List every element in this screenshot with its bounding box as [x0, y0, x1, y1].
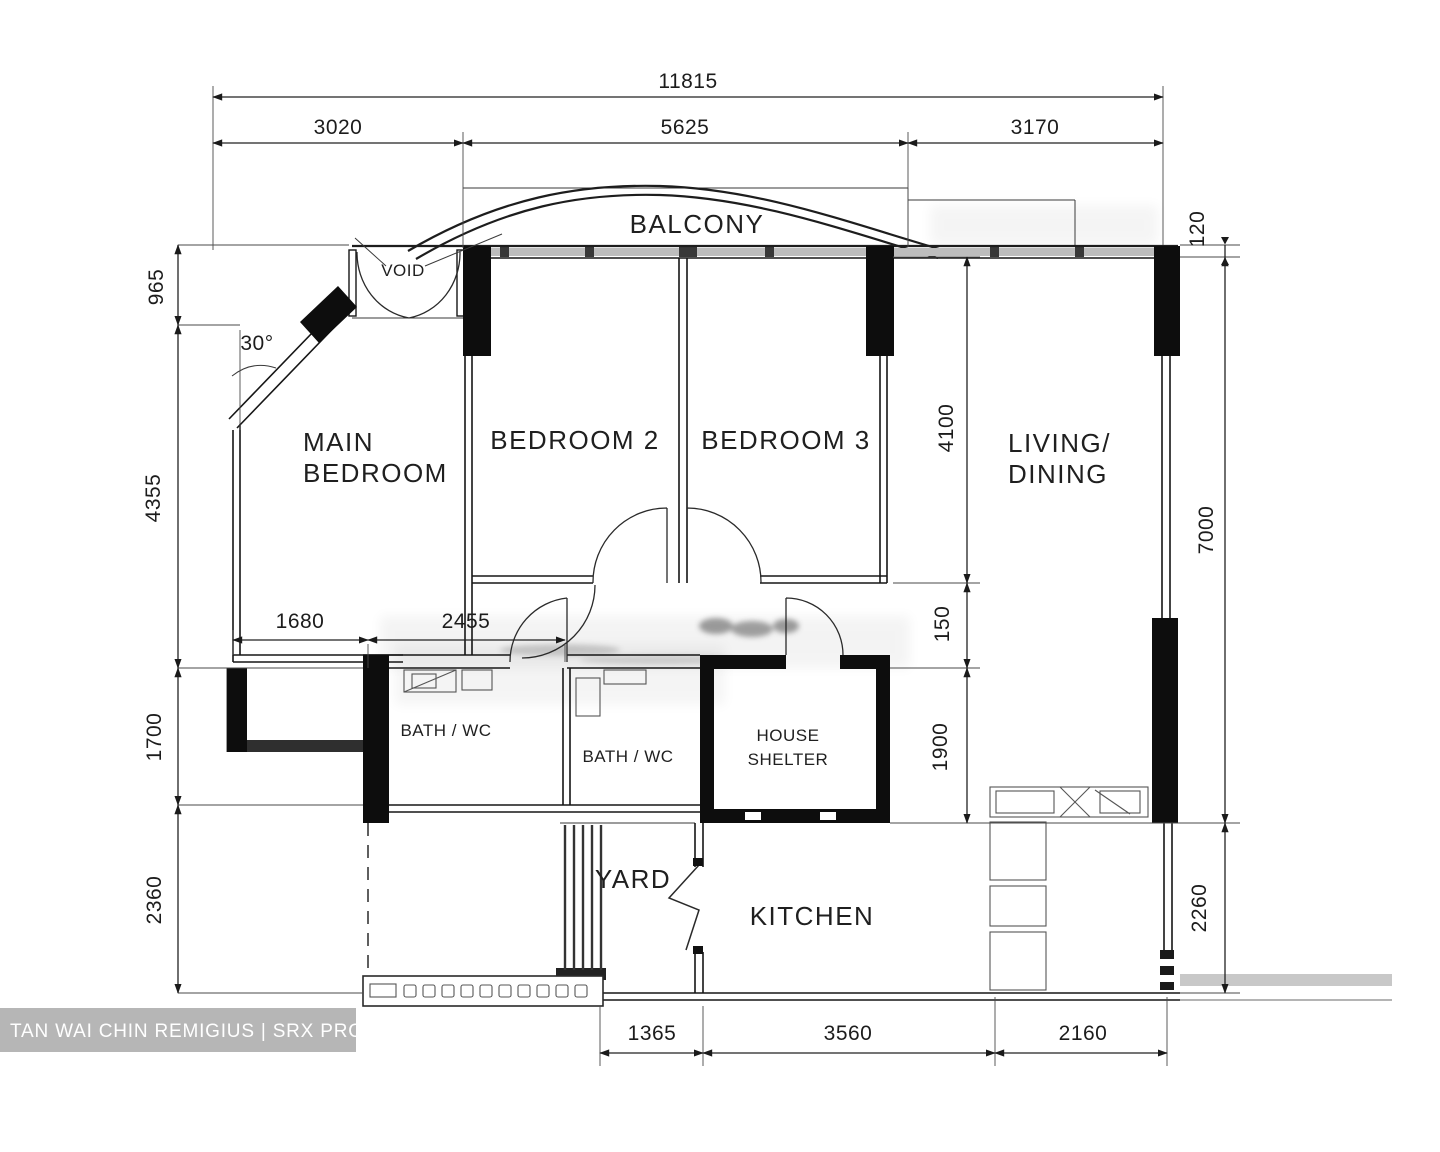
label-void: VOID: [381, 261, 425, 280]
label-bath1: BATH / WC: [400, 721, 491, 740]
dim-1900: 1900: [929, 723, 952, 772]
dim-1700: 1700: [143, 713, 166, 762]
dim-4355: 4355: [142, 474, 165, 523]
label-shelter-2: SHELTER: [748, 750, 829, 769]
label-bath2: BATH / WC: [582, 747, 673, 766]
dim-150: 150: [931, 606, 954, 643]
label-yard: YARD: [595, 864, 671, 894]
dim-3560: 3560: [824, 1022, 873, 1045]
dim-1680: 1680: [276, 610, 325, 633]
label-main-bedroom-2: BEDROOM: [303, 458, 448, 488]
dim-3020: 3020: [314, 116, 363, 139]
dim-angle-30: 30°: [240, 332, 273, 355]
dim-2160: 2160: [1059, 1022, 1108, 1045]
dim-4100: 4100: [935, 404, 958, 453]
label-bedroom-2: BEDROOM 2: [490, 425, 660, 455]
dim-2360: 2360: [143, 876, 166, 925]
label-living-1: LIVING/: [1008, 428, 1111, 458]
label-main-bedroom-1: MAIN: [303, 427, 374, 457]
louvre-window: [363, 976, 603, 1006]
dim-3170: 3170: [1011, 116, 1060, 139]
dim-965: 965: [145, 269, 168, 306]
dim-7000: 7000: [1195, 506, 1218, 555]
floorplan-page: 11815 3020 5625 3170 120 965 30° 4355 16…: [0, 0, 1440, 1152]
dim-2455: 2455: [442, 610, 491, 633]
dim-5625: 5625: [661, 116, 710, 139]
structural-pillars: [227, 246, 1180, 980]
watermark-text: TAN WAI CHIN REMIGIUS | SRX PROPERTY: [10, 1021, 431, 1042]
dim-120: 120: [1186, 211, 1209, 248]
label-shelter-1: HOUSE: [757, 726, 820, 745]
dim-total-width: 11815: [658, 70, 717, 93]
label-living-2: DINING: [1008, 459, 1108, 489]
label-bedroom-3: BEDROOM 3: [701, 425, 871, 455]
dim-1365: 1365: [628, 1022, 677, 1045]
watermark: TAN WAI CHIN REMIGIUS | SRX PROPERTY: [0, 1008, 431, 1052]
label-balcony: BALCONY: [630, 209, 765, 239]
window-sill-marks: [1160, 950, 1174, 990]
label-kitchen: KITCHEN: [750, 901, 875, 931]
floorplan-drawing: 11815 3020 5625 3170 120 965 30° 4355 16…: [0, 0, 1440, 1152]
dim-2260: 2260: [1188, 884, 1211, 933]
